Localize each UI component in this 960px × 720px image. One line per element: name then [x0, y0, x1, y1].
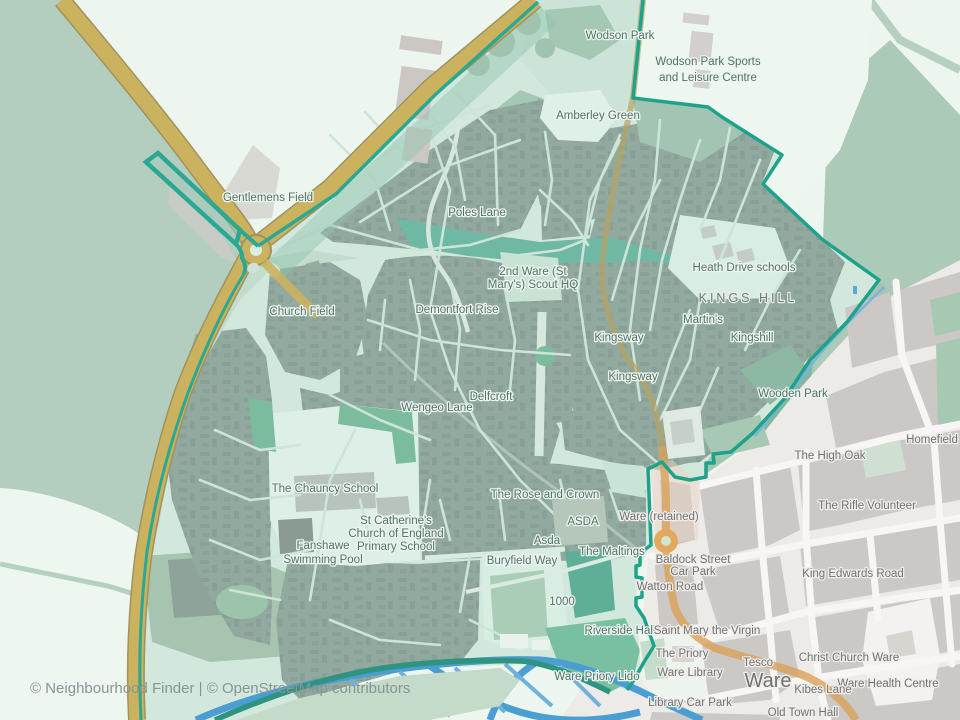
svg-text:Wengeo Lane: Wengeo Lane	[401, 402, 472, 414]
svg-text:Wodson Park: Wodson Park	[586, 30, 655, 42]
svg-text:Saint Mary the Virgin: Saint Mary the Virgin	[654, 625, 761, 637]
svg-text:Church of England: Church of England	[348, 528, 443, 540]
svg-text:Gentlemens Field: Gentlemens Field	[223, 192, 313, 204]
svg-text:Demontfort Rise: Demontfort Rise	[415, 304, 498, 316]
svg-text:St Catherine's: St Catherine's	[360, 515, 432, 527]
svg-text:Kingsway: Kingsway	[608, 371, 657, 383]
svg-text:KINGS HILL: KINGS HILL	[699, 291, 798, 305]
svg-text:Church Field: Church Field	[269, 306, 334, 318]
svg-text:Martin's: Martin's	[683, 314, 723, 326]
svg-text:and Leisure Centre: and Leisure Centre	[659, 72, 757, 84]
svg-text:The Rifle Volunteer: The Rifle Volunteer	[818, 500, 916, 512]
svg-text:Baldock Street: Baldock Street	[656, 554, 732, 566]
svg-text:Wodson Park Sports: Wodson Park Sports	[655, 56, 761, 68]
svg-text:© Neighbourhood Finder | © Ope: © Neighbourhood Finder | © OpenStreetMap…	[30, 680, 410, 697]
svg-text:Watton Road: Watton Road	[637, 581, 704, 593]
svg-text:Ware Library: Ware Library	[657, 667, 723, 679]
svg-text:The Rose and Crown: The Rose and Crown	[491, 489, 600, 501]
svg-text:ASDA: ASDA	[567, 516, 599, 528]
svg-text:Tesco: Tesco	[743, 657, 773, 669]
svg-text:Fanshawe: Fanshawe	[296, 540, 349, 552]
svg-text:1000: 1000	[549, 596, 575, 608]
svg-text:The High Oak: The High Oak	[795, 450, 866, 462]
svg-text:The Priory: The Priory	[655, 648, 708, 660]
svg-text:Old Town Hall: Old Town Hall	[768, 707, 839, 719]
svg-text:2nd Ware (St: 2nd Ware (St	[499, 266, 567, 278]
svg-text:Mary's) Scout HQ: Mary's) Scout HQ	[488, 279, 578, 291]
svg-text:Library Car Park: Library Car Park	[648, 697, 732, 709]
svg-text:Riverside Hall: Riverside Hall	[585, 625, 656, 637]
svg-text:Kibes Lane: Kibes Lane	[794, 684, 852, 696]
svg-text:Ware Priory Lido: Ware Priory Lido	[554, 671, 639, 683]
svg-text:Ware (retained): Ware (retained)	[619, 511, 699, 523]
svg-text:Heath Drive schools: Heath Drive schools	[693, 262, 796, 274]
svg-text:Asda: Asda	[534, 535, 561, 547]
svg-text:Wooden Park: Wooden Park	[758, 388, 828, 400]
svg-text:The Maltings: The Maltings	[579, 546, 645, 558]
svg-text:King Edwards Road: King Edwards Road	[802, 568, 904, 580]
svg-text:Primary School: Primary School	[357, 541, 435, 553]
svg-text:Homefield: Homefield	[906, 434, 958, 446]
svg-text:Buryfield Way: Buryfield Way	[487, 555, 558, 567]
svg-text:Delfcroft: Delfcroft	[470, 391, 514, 403]
svg-text:Amberley Green: Amberley Green	[556, 110, 640, 122]
svg-text:Kingsway: Kingsway	[594, 332, 643, 344]
svg-text:The Chauncy School: The Chauncy School	[272, 483, 379, 495]
svg-text:Ware Health Centre: Ware Health Centre	[837, 678, 938, 690]
svg-text:Poles Lane: Poles Lane	[448, 207, 506, 219]
svg-text:Car Park: Car Park	[670, 566, 716, 578]
svg-text:Swimming Pool: Swimming Pool	[283, 554, 362, 566]
svg-text:Christ Church Ware: Christ Church Ware	[799, 652, 900, 664]
svg-text:Ware: Ware	[744, 670, 791, 692]
svg-text:Kingshill: Kingshill	[731, 332, 774, 344]
